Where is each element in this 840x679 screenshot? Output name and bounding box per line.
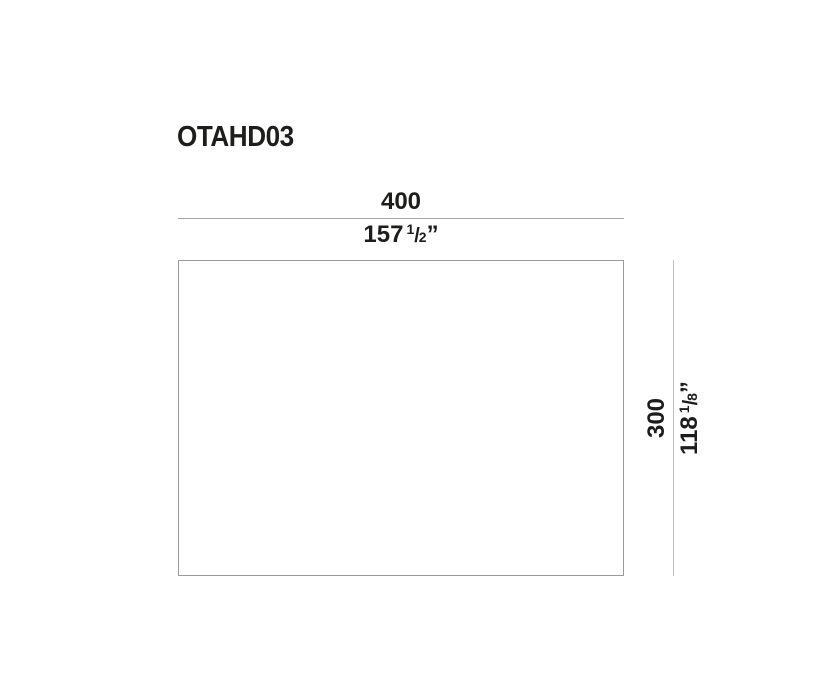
- width-metric-value: 400: [381, 188, 421, 215]
- height-metric-label: 300: [645, 260, 674, 576]
- width-imperial-label: 1571/2”: [178, 219, 624, 248]
- width-imperial-whole: 157: [363, 221, 403, 248]
- width-unit-mark: ”: [427, 221, 439, 248]
- height-dimension-group: 300 1181/8”: [645, 260, 703, 576]
- width-dimension-group: 400 1571/2”: [178, 190, 624, 248]
- height-unit-mark: ”: [676, 381, 703, 393]
- width-metric-label: 400: [178, 190, 624, 219]
- height-metric-value: 300: [643, 398, 670, 438]
- height-fraction-numerator: 1: [676, 405, 692, 413]
- page-title: OTAHD03: [177, 122, 294, 152]
- height-imperial-label: 1181/8”: [674, 260, 703, 576]
- height-fraction-denominator: 8: [684, 393, 700, 401]
- height-fraction-slash: /: [680, 401, 702, 406]
- plan-rectangle: [178, 260, 624, 576]
- dimension-drawing-page: OTAHD03 400 1571/2” 300 1181/8”: [0, 0, 840, 679]
- height-imperial-whole: 118: [676, 416, 703, 455]
- width-fraction-denominator: 2: [419, 229, 427, 245]
